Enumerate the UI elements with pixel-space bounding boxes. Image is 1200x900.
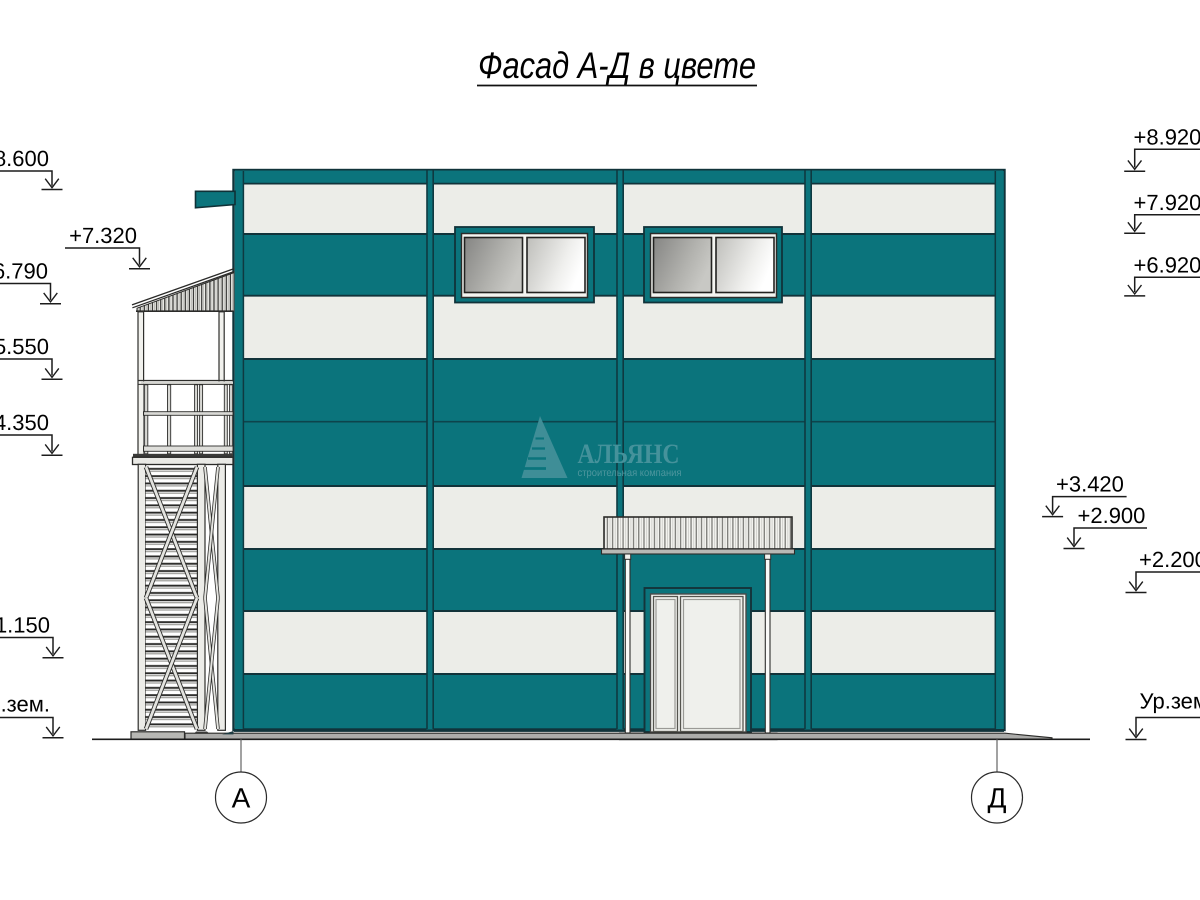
svg-text:+8.920: +8.920 bbox=[1134, 125, 1200, 150]
svg-text:Ур.зем.: Ур.зем. bbox=[0, 692, 50, 717]
svg-text:+6.920: +6.920 bbox=[1134, 253, 1200, 278]
svg-text:строительная компания: строительная компания bbox=[578, 467, 682, 479]
svg-text:+3.420: +3.420 bbox=[1056, 472, 1124, 497]
svg-text:Ур.зем.: Ур.зем. bbox=[1140, 689, 1200, 714]
svg-text:+2.900: +2.900 bbox=[1078, 503, 1146, 528]
svg-text:+5.550: +5.550 bbox=[0, 334, 49, 359]
svg-text:Фасад А-Д в цвете: Фасад А-Д в цвете bbox=[478, 45, 756, 86]
svg-text:+4.350: +4.350 bbox=[0, 410, 49, 435]
svg-text:+6.790: +6.790 bbox=[0, 259, 48, 284]
svg-text:А: А bbox=[232, 783, 251, 814]
svg-text:+8.600: +8.600 bbox=[0, 146, 49, 171]
svg-text:+1.150: +1.150 bbox=[0, 613, 50, 638]
svg-text:+2.200: +2.200 bbox=[1139, 547, 1200, 572]
svg-text:+7.920: +7.920 bbox=[1134, 190, 1200, 215]
svg-text:АЛЬЯНС: АЛЬЯНС bbox=[578, 439, 680, 470]
svg-text:+7.320: +7.320 bbox=[69, 223, 137, 248]
svg-text:Д: Д bbox=[988, 783, 1007, 814]
